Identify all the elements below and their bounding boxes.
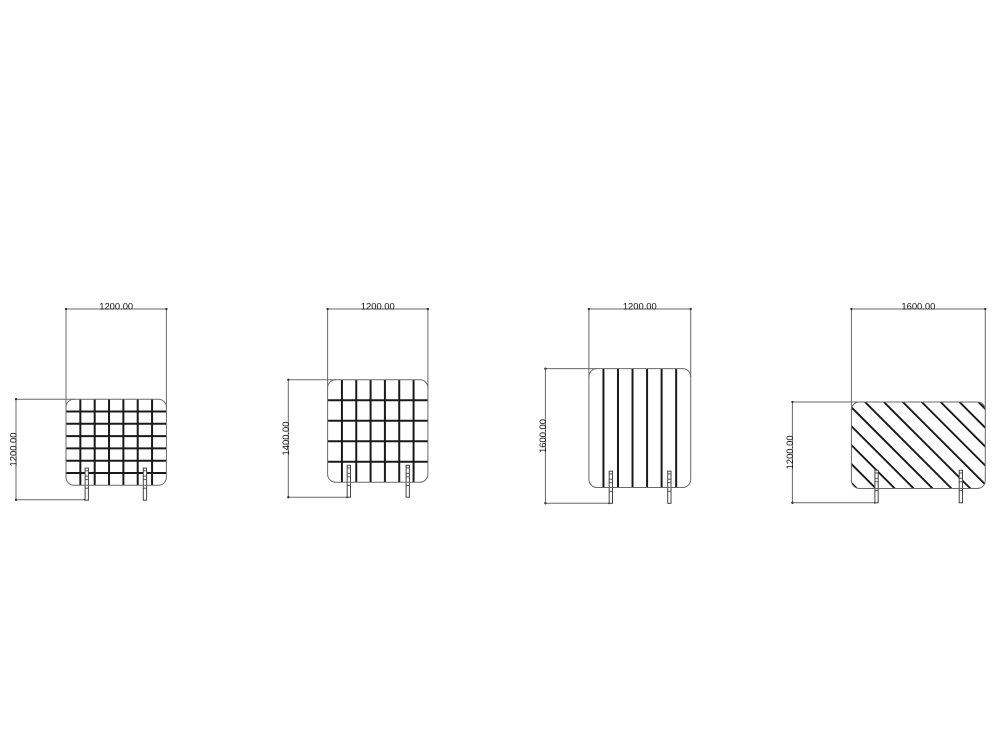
svg-text:1200.00: 1200.00 [361,301,395,312]
svg-text:1200.00: 1200.00 [784,435,795,469]
svg-text:1200.00: 1200.00 [623,301,657,312]
svg-text:1400.00: 1400.00 [280,422,291,456]
svg-text:1600.00: 1600.00 [901,301,935,312]
svg-text:1600.00: 1600.00 [537,419,548,453]
svg-text:1200.00: 1200.00 [99,301,133,312]
svg-text:1200.00: 1200.00 [8,433,19,467]
